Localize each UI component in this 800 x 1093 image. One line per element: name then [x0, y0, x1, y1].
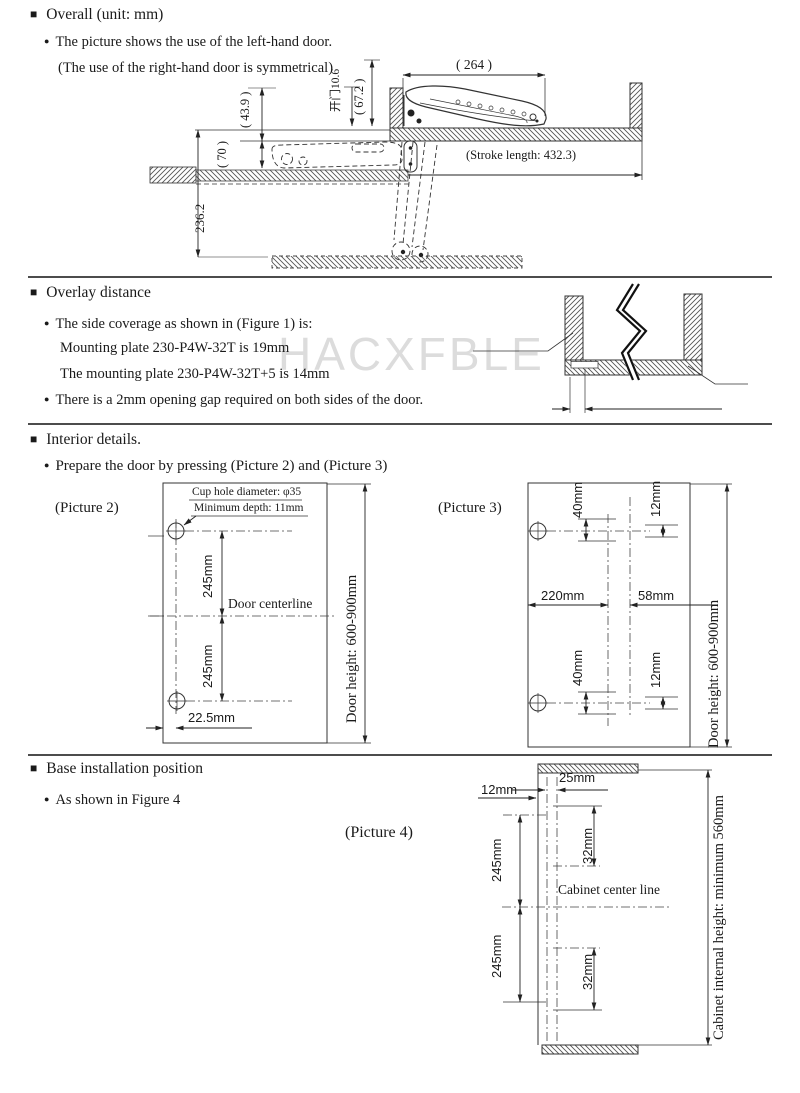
picture2-label: (Picture 2): [55, 500, 119, 517]
pic3-dim-40-top: 40mm: [571, 482, 586, 518]
section4-title: ■Base installation position: [30, 760, 203, 777]
section1-bullet1: ●The picture shows the use of the left-h…: [44, 34, 332, 50]
dim-67-2: ( 67.2 ): [352, 79, 366, 115]
picture4-label: (Picture 4): [345, 824, 413, 842]
stroke-length-label: (Stroke length: 432.3): [466, 148, 576, 162]
pic3-dim-40-bottom: 40mm: [571, 650, 586, 686]
section1-title: ■Overall (unit: mm): [30, 6, 163, 23]
picture4-drawing: [503, 764, 712, 1054]
picture3-label: (Picture 3): [438, 500, 502, 517]
figure-overall: [150, 83, 642, 183]
section2-bullet2: ●There is a 2mm opening gap required on …: [44, 392, 423, 408]
pic2-dim-245-bottom: 245mm: [201, 645, 216, 688]
section-marker-icon: ■: [30, 433, 37, 446]
installation-instruction-page: { "page": { "watermark": "HACXFBLE" }, "…: [0, 0, 800, 1093]
bullet-icon: ●: [44, 318, 49, 328]
section4-bullet1: ●As shown in Figure 4: [44, 792, 180, 808]
pic3-dim-12-top: 12mm: [649, 481, 664, 517]
dim-43-9: ( 43.9 ): [238, 92, 252, 128]
pic4-internal-height: Cabinet internal height: minimum 560mm: [711, 795, 727, 1040]
pic4-dim-32-top: 32mm: [581, 828, 596, 864]
picture2-centerlines: [150, 519, 336, 714]
pic4-dim-245-top: 245mm: [490, 839, 505, 882]
figure1-overlay: [473, 284, 748, 413]
pic2-dim-245-top: 245mm: [201, 555, 216, 598]
section2-line2: Mounting plate 230-P4W-32T is 19mm: [60, 340, 289, 356]
bullet-icon: ●: [44, 36, 49, 46]
technical-linework: [0, 0, 800, 1093]
dim-opening-10-6: 开门10.6: [330, 69, 343, 112]
section3-title: ■Interior details.: [30, 431, 141, 448]
section-marker-icon: ■: [30, 286, 37, 299]
pic3-dim-12-bottom: 12mm: [649, 652, 664, 688]
dim-236-2: 236.2: [193, 204, 208, 233]
pic2-dim-22-5: 22.5mm: [188, 711, 235, 726]
door-centerline-label: Door centerline: [228, 596, 312, 611]
cabinet-centerline-label: Cabinet center line: [558, 882, 660, 897]
section1-bullet2: (The use of the right-hand door is symme…: [58, 60, 333, 76]
pic4-dim-25: 25mm: [559, 771, 595, 786]
section-marker-icon: ■: [30, 762, 37, 775]
picture4-dims: [478, 770, 708, 1045]
pic4-dim-32-bottom: 32mm: [581, 954, 596, 990]
bullet-icon: ●: [44, 394, 49, 404]
picture3-dims: [528, 484, 727, 747]
dim-70: ( 70 ): [215, 141, 229, 168]
cup-hole-note: Cup hole diameter: φ35: [192, 486, 301, 499]
pic4-dim-245-bottom: 245mm: [490, 935, 505, 978]
section2-bullet1: ●The side coverage as shown in (Figure 1…: [44, 316, 312, 332]
pic3-dim-58: 58mm: [638, 589, 674, 604]
picture2-drawing: [148, 483, 371, 743]
section2-line3: The mounting plate 230-P4W-32T+5 is 14mm: [60, 366, 330, 382]
picture2-dims: [146, 484, 365, 743]
bullet-icon: ●: [44, 460, 49, 470]
dim-264: ( 264 ): [430, 57, 518, 72]
pic3-door-height: Door height: 600-900mm: [706, 600, 722, 748]
figure-overall-solid-details: [401, 141, 423, 257]
pic2-door-height: Door height: 600-900mm: [344, 575, 360, 723]
section-marker-icon: ■: [30, 8, 37, 21]
section3-bullet1: ●Prepare the door by pressing (Picture 2…: [44, 458, 387, 475]
min-depth-note: Minimum depth: 11mm: [194, 502, 303, 515]
section2-title: ■Overlay distance: [30, 284, 151, 301]
pic3-dim-220: 220mm: [541, 589, 584, 604]
bullet-icon: ●: [44, 794, 49, 804]
pic4-dim-12: 12mm: [481, 783, 517, 798]
